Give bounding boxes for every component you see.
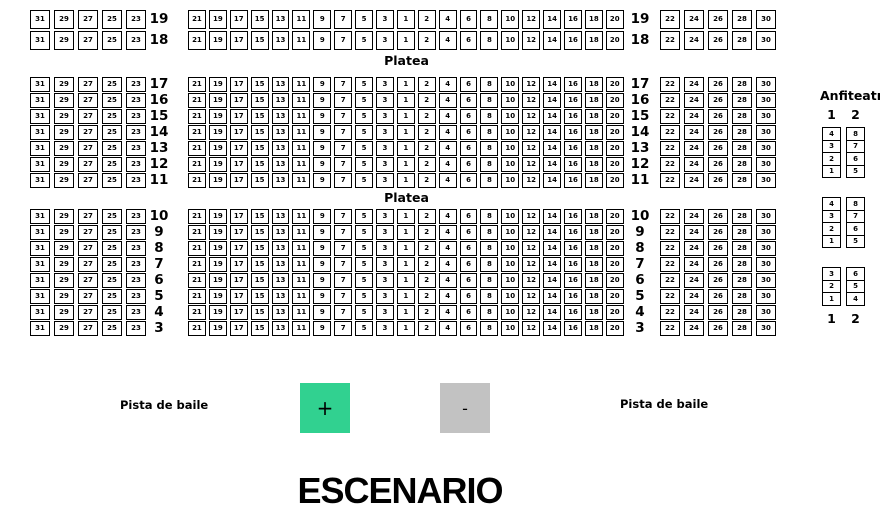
- anfiteatro-seat-g2-c2-8[interactable]: 8: [846, 197, 865, 211]
- seat-row4-num26[interactable]: 26: [708, 305, 728, 320]
- seat-row18-num27[interactable]: 27: [78, 31, 98, 50]
- seat-row9-num13[interactable]: 13: [272, 225, 290, 240]
- seat-row4-num3[interactable]: 3: [376, 305, 394, 320]
- seat-row6-num24[interactable]: 24: [684, 273, 704, 288]
- seat-row8-num24[interactable]: 24: [684, 241, 704, 256]
- seat-row19-num31[interactable]: 31: [30, 10, 50, 29]
- seat-row10-num18[interactable]: 18: [585, 209, 603, 224]
- seat-row10-num21[interactable]: 21: [188, 209, 206, 224]
- seat-row14-num19[interactable]: 19: [209, 125, 227, 140]
- seat-row8-num4[interactable]: 4: [439, 241, 457, 256]
- seat-row8-num28[interactable]: 28: [732, 241, 752, 256]
- seat-row10-num16[interactable]: 16: [564, 209, 582, 224]
- seat-row15-num15[interactable]: 15: [251, 109, 269, 124]
- seat-row16-num12[interactable]: 12: [522, 93, 540, 108]
- seat-row6-num9[interactable]: 9: [313, 273, 331, 288]
- seat-row12-num15[interactable]: 15: [251, 157, 269, 172]
- anfiteatro-seat-g1-c2-5[interactable]: 5: [846, 165, 865, 179]
- seat-row10-num13[interactable]: 13: [272, 209, 290, 224]
- seat-row16-num24[interactable]: 24: [684, 93, 704, 108]
- seat-row14-num16[interactable]: 16: [564, 125, 582, 140]
- seat-row7-num3[interactable]: 3: [376, 257, 394, 272]
- seat-row4-num24[interactable]: 24: [684, 305, 704, 320]
- seat-row17-num20[interactable]: 20: [606, 77, 624, 92]
- seat-row16-num11[interactable]: 11: [292, 93, 310, 108]
- seat-row9-num2[interactable]: 2: [418, 225, 436, 240]
- seat-row11-num28[interactable]: 28: [732, 173, 752, 188]
- seat-row13-num20[interactable]: 20: [606, 141, 624, 156]
- seat-row11-num4[interactable]: 4: [439, 173, 457, 188]
- seat-row15-num18[interactable]: 18: [585, 109, 603, 124]
- seat-row15-num20[interactable]: 20: [606, 109, 624, 124]
- seat-row19-num2[interactable]: 2: [418, 10, 436, 29]
- seat-row8-num11[interactable]: 11: [292, 241, 310, 256]
- seat-row15-num23[interactable]: 23: [126, 109, 146, 124]
- seat-row15-num26[interactable]: 26: [708, 109, 728, 124]
- seat-row14-num28[interactable]: 28: [732, 125, 752, 140]
- seat-row15-num5[interactable]: 5: [355, 109, 373, 124]
- seat-row18-num6[interactable]: 6: [460, 31, 478, 50]
- seat-row14-num3[interactable]: 3: [376, 125, 394, 140]
- seat-row13-num4[interactable]: 4: [439, 141, 457, 156]
- anfiteatro-seat-g1-c1-4[interactable]: 4: [822, 127, 841, 141]
- seat-row18-num28[interactable]: 28: [732, 31, 752, 50]
- seat-row11-num1[interactable]: 1: [397, 173, 415, 188]
- seat-row9-num20[interactable]: 20: [606, 225, 624, 240]
- seat-row16-num1[interactable]: 1: [397, 93, 415, 108]
- seat-row16-num26[interactable]: 26: [708, 93, 728, 108]
- seat-row14-num25[interactable]: 25: [102, 125, 122, 140]
- seat-row16-num17[interactable]: 17: [230, 93, 248, 108]
- seat-row19-num30[interactable]: 30: [756, 10, 776, 29]
- seat-row6-num22[interactable]: 22: [660, 273, 680, 288]
- seat-row14-num10[interactable]: 10: [501, 125, 519, 140]
- seat-row19-num27[interactable]: 27: [78, 10, 98, 29]
- seat-row14-num7[interactable]: 7: [334, 125, 352, 140]
- seat-row18-num7[interactable]: 7: [334, 31, 352, 50]
- seat-row10-num11[interactable]: 11: [292, 209, 310, 224]
- seat-row3-num24[interactable]: 24: [684, 321, 704, 336]
- seat-row5-num26[interactable]: 26: [708, 289, 728, 304]
- seat-row4-num22[interactable]: 22: [660, 305, 680, 320]
- seat-row12-num26[interactable]: 26: [708, 157, 728, 172]
- seat-row6-num26[interactable]: 26: [708, 273, 728, 288]
- anfiteatro-seat-g3-c1-1[interactable]: 1: [822, 292, 841, 306]
- seat-row7-num2[interactable]: 2: [418, 257, 436, 272]
- seat-row7-num4[interactable]: 4: [439, 257, 457, 272]
- seat-row4-num7[interactable]: 7: [334, 305, 352, 320]
- seat-row9-num24[interactable]: 24: [684, 225, 704, 240]
- seat-row7-num6[interactable]: 6: [460, 257, 478, 272]
- anfiteatro-seat-g2-c2-6[interactable]: 6: [846, 222, 865, 236]
- seat-row18-num22[interactable]: 22: [660, 31, 680, 50]
- seat-row16-num30[interactable]: 30: [756, 93, 776, 108]
- seat-row8-num1[interactable]: 1: [397, 241, 415, 256]
- seat-row15-num29[interactable]: 29: [54, 109, 74, 124]
- seat-row7-num18[interactable]: 18: [585, 257, 603, 272]
- seat-row6-num21[interactable]: 21: [188, 273, 206, 288]
- seat-row14-num26[interactable]: 26: [708, 125, 728, 140]
- seat-row15-num12[interactable]: 12: [522, 109, 540, 124]
- seat-row7-num16[interactable]: 16: [564, 257, 582, 272]
- seat-row19-num9[interactable]: 9: [313, 10, 331, 29]
- seat-row12-num12[interactable]: 12: [522, 157, 540, 172]
- seat-row15-num6[interactable]: 6: [460, 109, 478, 124]
- seat-row17-num6[interactable]: 6: [460, 77, 478, 92]
- seat-row16-num22[interactable]: 22: [660, 93, 680, 108]
- seat-row3-num17[interactable]: 17: [230, 321, 248, 336]
- seat-row7-num20[interactable]: 20: [606, 257, 624, 272]
- seat-row8-num25[interactable]: 25: [102, 241, 122, 256]
- seat-row8-num18[interactable]: 18: [585, 241, 603, 256]
- seat-row8-num19[interactable]: 19: [209, 241, 227, 256]
- seat-row13-num15[interactable]: 15: [251, 141, 269, 156]
- seat-row10-num8[interactable]: 8: [480, 209, 498, 224]
- seat-row4-num21[interactable]: 21: [188, 305, 206, 320]
- seat-row11-num20[interactable]: 20: [606, 173, 624, 188]
- seat-row13-num12[interactable]: 12: [522, 141, 540, 156]
- seat-row18-num2[interactable]: 2: [418, 31, 436, 50]
- seat-row19-num7[interactable]: 7: [334, 10, 352, 29]
- seat-row3-num9[interactable]: 9: [313, 321, 331, 336]
- seat-row7-num12[interactable]: 12: [522, 257, 540, 272]
- seat-row9-num18[interactable]: 18: [585, 225, 603, 240]
- seat-row10-num6[interactable]: 6: [460, 209, 478, 224]
- seat-row9-num14[interactable]: 14: [543, 225, 561, 240]
- seat-row13-num28[interactable]: 28: [732, 141, 752, 156]
- seat-row6-num28[interactable]: 28: [732, 273, 752, 288]
- seat-row12-num27[interactable]: 27: [78, 157, 98, 172]
- seat-row12-num18[interactable]: 18: [585, 157, 603, 172]
- seat-row3-num2[interactable]: 2: [418, 321, 436, 336]
- seat-row14-num30[interactable]: 30: [756, 125, 776, 140]
- seat-row6-num12[interactable]: 12: [522, 273, 540, 288]
- seat-row13-num10[interactable]: 10: [501, 141, 519, 156]
- seat-row6-num20[interactable]: 20: [606, 273, 624, 288]
- seat-row7-num21[interactable]: 21: [188, 257, 206, 272]
- seat-row9-num23[interactable]: 23: [126, 225, 146, 240]
- seat-row6-num15[interactable]: 15: [251, 273, 269, 288]
- seat-row9-num16[interactable]: 16: [564, 225, 582, 240]
- seat-row3-num6[interactable]: 6: [460, 321, 478, 336]
- seat-row3-num29[interactable]: 29: [54, 321, 74, 336]
- seat-row18-num24[interactable]: 24: [684, 31, 704, 50]
- seat-row8-num5[interactable]: 5: [355, 241, 373, 256]
- seat-row6-num6[interactable]: 6: [460, 273, 478, 288]
- seat-row6-num13[interactable]: 13: [272, 273, 290, 288]
- seat-row11-num6[interactable]: 6: [460, 173, 478, 188]
- seat-row19-num12[interactable]: 12: [522, 10, 540, 29]
- seat-row13-num2[interactable]: 2: [418, 141, 436, 156]
- anfiteatro-seat-g2-c1-4[interactable]: 4: [822, 197, 841, 211]
- seat-row18-num19[interactable]: 19: [209, 31, 227, 50]
- seat-row12-num3[interactable]: 3: [376, 157, 394, 172]
- seat-row17-num3[interactable]: 3: [376, 77, 394, 92]
- seat-row3-num28[interactable]: 28: [732, 321, 752, 336]
- anfiteatro-seat-g1-c2-8[interactable]: 8: [846, 127, 865, 141]
- seat-row4-num10[interactable]: 10: [501, 305, 519, 320]
- seat-row11-num17[interactable]: 17: [230, 173, 248, 188]
- seat-row18-num21[interactable]: 21: [188, 31, 206, 50]
- seat-row3-num26[interactable]: 26: [708, 321, 728, 336]
- seat-row18-num18[interactable]: 18: [585, 31, 603, 50]
- seat-row7-num31[interactable]: 31: [30, 257, 50, 272]
- seat-row13-num7[interactable]: 7: [334, 141, 352, 156]
- anfiteatro-seat-g3-c2-6[interactable]: 6: [846, 267, 865, 281]
- seat-row9-num4[interactable]: 4: [439, 225, 457, 240]
- seat-row8-num2[interactable]: 2: [418, 241, 436, 256]
- seat-row17-num14[interactable]: 14: [543, 77, 561, 92]
- seat-row10-num26[interactable]: 26: [708, 209, 728, 224]
- seat-row9-num5[interactable]: 5: [355, 225, 373, 240]
- seat-row8-num14[interactable]: 14: [543, 241, 561, 256]
- seat-row14-num5[interactable]: 5: [355, 125, 373, 140]
- seat-row5-num20[interactable]: 20: [606, 289, 624, 304]
- seat-row14-num18[interactable]: 18: [585, 125, 603, 140]
- anfiteatro-seat-g2-c1-3[interactable]: 3: [822, 210, 841, 224]
- seat-row15-num27[interactable]: 27: [78, 109, 98, 124]
- seat-row5-num28[interactable]: 28: [732, 289, 752, 304]
- seat-row10-num29[interactable]: 29: [54, 209, 74, 224]
- seat-row13-num17[interactable]: 17: [230, 141, 248, 156]
- seat-row9-num10[interactable]: 10: [501, 225, 519, 240]
- seat-row19-num3[interactable]: 3: [376, 10, 394, 29]
- seat-row3-num22[interactable]: 22: [660, 321, 680, 336]
- seat-row5-num17[interactable]: 17: [230, 289, 248, 304]
- seat-row6-num14[interactable]: 14: [543, 273, 561, 288]
- seat-row19-num26[interactable]: 26: [708, 10, 728, 29]
- seat-row16-num10[interactable]: 10: [501, 93, 519, 108]
- seat-row17-num27[interactable]: 27: [78, 77, 98, 92]
- seat-row15-num4[interactable]: 4: [439, 109, 457, 124]
- seat-row11-num8[interactable]: 8: [480, 173, 498, 188]
- seat-row18-num10[interactable]: 10: [501, 31, 519, 50]
- seat-row17-num7[interactable]: 7: [334, 77, 352, 92]
- seat-row8-num31[interactable]: 31: [30, 241, 50, 256]
- seat-row16-num5[interactable]: 5: [355, 93, 373, 108]
- seat-row4-num31[interactable]: 31: [30, 305, 50, 320]
- seat-row17-num24[interactable]: 24: [684, 77, 704, 92]
- seat-row4-num20[interactable]: 20: [606, 305, 624, 320]
- seat-row13-num11[interactable]: 11: [292, 141, 310, 156]
- seat-row17-num10[interactable]: 10: [501, 77, 519, 92]
- seat-row9-num3[interactable]: 3: [376, 225, 394, 240]
- seat-row14-num11[interactable]: 11: [292, 125, 310, 140]
- seat-row12-num5[interactable]: 5: [355, 157, 373, 172]
- seat-row10-num19[interactable]: 19: [209, 209, 227, 224]
- seat-row15-num19[interactable]: 19: [209, 109, 227, 124]
- seat-row14-num12[interactable]: 12: [522, 125, 540, 140]
- seat-row17-num29[interactable]: 29: [54, 77, 74, 92]
- seat-row8-num3[interactable]: 3: [376, 241, 394, 256]
- seat-row3-num5[interactable]: 5: [355, 321, 373, 336]
- seat-row8-num21[interactable]: 21: [188, 241, 206, 256]
- seat-row16-num29[interactable]: 29: [54, 93, 74, 108]
- seat-row18-num26[interactable]: 26: [708, 31, 728, 50]
- seat-row6-num3[interactable]: 3: [376, 273, 394, 288]
- anfiteatro-seat-g1-c1-1[interactable]: 1: [822, 165, 841, 179]
- seat-row7-num23[interactable]: 23: [126, 257, 146, 272]
- seat-row12-num13[interactable]: 13: [272, 157, 290, 172]
- seat-row8-num17[interactable]: 17: [230, 241, 248, 256]
- seat-row12-num31[interactable]: 31: [30, 157, 50, 172]
- seat-row10-num4[interactable]: 4: [439, 209, 457, 224]
- seat-row15-num30[interactable]: 30: [756, 109, 776, 124]
- seat-row16-num16[interactable]: 16: [564, 93, 582, 108]
- seat-row6-num10[interactable]: 10: [501, 273, 519, 288]
- seat-row18-num20[interactable]: 20: [606, 31, 624, 50]
- seat-row16-num14[interactable]: 14: [543, 93, 561, 108]
- seat-row17-num19[interactable]: 19: [209, 77, 227, 92]
- seat-row19-num18[interactable]: 18: [585, 10, 603, 29]
- seat-row4-num28[interactable]: 28: [732, 305, 752, 320]
- seat-row12-num21[interactable]: 21: [188, 157, 206, 172]
- seat-row9-num29[interactable]: 29: [54, 225, 74, 240]
- seat-row17-num28[interactable]: 28: [732, 77, 752, 92]
- seat-row3-num8[interactable]: 8: [480, 321, 498, 336]
- seat-row13-num14[interactable]: 14: [543, 141, 561, 156]
- seat-row5-num21[interactable]: 21: [188, 289, 206, 304]
- seat-row18-num30[interactable]: 30: [756, 31, 776, 50]
- seat-row10-num7[interactable]: 7: [334, 209, 352, 224]
- seat-row8-num27[interactable]: 27: [78, 241, 98, 256]
- seat-row17-num4[interactable]: 4: [439, 77, 457, 92]
- seat-row12-num23[interactable]: 23: [126, 157, 146, 172]
- seat-row7-num17[interactable]: 17: [230, 257, 248, 272]
- seat-row3-num19[interactable]: 19: [209, 321, 227, 336]
- seat-row4-num4[interactable]: 4: [439, 305, 457, 320]
- seat-row17-num16[interactable]: 16: [564, 77, 582, 92]
- seat-row4-num8[interactable]: 8: [480, 305, 498, 320]
- seat-row19-num20[interactable]: 20: [606, 10, 624, 29]
- seat-row7-num27[interactable]: 27: [78, 257, 98, 272]
- seat-row7-num25[interactable]: 25: [102, 257, 122, 272]
- seat-row8-num16[interactable]: 16: [564, 241, 582, 256]
- seat-row18-num11[interactable]: 11: [292, 31, 310, 50]
- seat-row14-num23[interactable]: 23: [126, 125, 146, 140]
- seat-row15-num3[interactable]: 3: [376, 109, 394, 124]
- seat-row4-num6[interactable]: 6: [460, 305, 478, 320]
- seat-row18-num31[interactable]: 31: [30, 31, 50, 50]
- seat-row5-num6[interactable]: 6: [460, 289, 478, 304]
- seat-row5-num12[interactable]: 12: [522, 289, 540, 304]
- seat-row5-num8[interactable]: 8: [480, 289, 498, 304]
- seat-row3-num3[interactable]: 3: [376, 321, 394, 336]
- seat-row17-num2[interactable]: 2: [418, 77, 436, 92]
- seat-row8-num30[interactable]: 30: [756, 241, 776, 256]
- seat-row4-num12[interactable]: 12: [522, 305, 540, 320]
- seat-row8-num13[interactable]: 13: [272, 241, 290, 256]
- seat-row7-num1[interactable]: 1: [397, 257, 415, 272]
- seat-row7-num24[interactable]: 24: [684, 257, 704, 272]
- seat-row11-num25[interactable]: 25: [102, 173, 122, 188]
- seat-row14-num8[interactable]: 8: [480, 125, 498, 140]
- seat-row4-num19[interactable]: 19: [209, 305, 227, 320]
- seat-row9-num25[interactable]: 25: [102, 225, 122, 240]
- seat-row11-num10[interactable]: 10: [501, 173, 519, 188]
- seat-row18-num23[interactable]: 23: [126, 31, 146, 50]
- seat-row18-num16[interactable]: 16: [564, 31, 582, 50]
- seat-row15-num1[interactable]: 1: [397, 109, 415, 124]
- seat-row9-num12[interactable]: 12: [522, 225, 540, 240]
- seat-row17-num25[interactable]: 25: [102, 77, 122, 92]
- seat-row12-num2[interactable]: 2: [418, 157, 436, 172]
- seat-row10-num20[interactable]: 20: [606, 209, 624, 224]
- seat-row9-num7[interactable]: 7: [334, 225, 352, 240]
- seat-row11-num5[interactable]: 5: [355, 173, 373, 188]
- seat-row18-num5[interactable]: 5: [355, 31, 373, 50]
- seat-row12-num8[interactable]: 8: [480, 157, 498, 172]
- seat-row9-num15[interactable]: 15: [251, 225, 269, 240]
- seat-row8-num26[interactable]: 26: [708, 241, 728, 256]
- seat-row11-num22[interactable]: 22: [660, 173, 680, 188]
- seat-row12-num17[interactable]: 17: [230, 157, 248, 172]
- seat-row15-num13[interactable]: 13: [272, 109, 290, 124]
- seat-row10-num31[interactable]: 31: [30, 209, 50, 224]
- seat-row10-num9[interactable]: 9: [313, 209, 331, 224]
- seat-row11-num15[interactable]: 15: [251, 173, 269, 188]
- seat-row16-num21[interactable]: 21: [188, 93, 206, 108]
- seat-row9-num22[interactable]: 22: [660, 225, 680, 240]
- seat-row11-num27[interactable]: 27: [78, 173, 98, 188]
- seat-row14-num9[interactable]: 9: [313, 125, 331, 140]
- seat-row12-num7[interactable]: 7: [334, 157, 352, 172]
- seat-row19-num25[interactable]: 25: [102, 10, 122, 29]
- seat-row3-num1[interactable]: 1: [397, 321, 415, 336]
- anfiteatro-seat-g2-c2-7[interactable]: 7: [846, 210, 865, 224]
- seat-row5-num14[interactable]: 14: [543, 289, 561, 304]
- seat-row3-num23[interactable]: 23: [126, 321, 146, 336]
- seat-row15-num14[interactable]: 14: [543, 109, 561, 124]
- seat-row19-num21[interactable]: 21: [188, 10, 206, 29]
- seat-row6-num25[interactable]: 25: [102, 273, 122, 288]
- seat-row18-num25[interactable]: 25: [102, 31, 122, 50]
- seat-row12-num29[interactable]: 29: [54, 157, 74, 172]
- seat-row13-num19[interactable]: 19: [209, 141, 227, 156]
- seat-row5-num29[interactable]: 29: [54, 289, 74, 304]
- seat-row19-num23[interactable]: 23: [126, 10, 146, 29]
- seat-row8-num9[interactable]: 9: [313, 241, 331, 256]
- seat-row10-num5[interactable]: 5: [355, 209, 373, 224]
- seat-row7-num22[interactable]: 22: [660, 257, 680, 272]
- seat-row14-num1[interactable]: 1: [397, 125, 415, 140]
- seat-row8-num8[interactable]: 8: [480, 241, 498, 256]
- seat-row14-num21[interactable]: 21: [188, 125, 206, 140]
- seat-row3-num4[interactable]: 4: [439, 321, 457, 336]
- seat-row5-num16[interactable]: 16: [564, 289, 582, 304]
- seat-row14-num20[interactable]: 20: [606, 125, 624, 140]
- seat-row13-num27[interactable]: 27: [78, 141, 98, 156]
- anfiteatro-seat-g3-c1-3[interactable]: 3: [822, 267, 841, 281]
- seat-row3-num12[interactable]: 12: [522, 321, 540, 336]
- seat-row17-num31[interactable]: 31: [30, 77, 50, 92]
- seat-row11-num23[interactable]: 23: [126, 173, 146, 188]
- seat-row5-num13[interactable]: 13: [272, 289, 290, 304]
- seat-row4-num18[interactable]: 18: [585, 305, 603, 320]
- anfiteatro-seat-g3-c2-5[interactable]: 5: [846, 280, 865, 294]
- seat-row13-num9[interactable]: 9: [313, 141, 331, 156]
- seat-row11-num29[interactable]: 29: [54, 173, 74, 188]
- seat-row14-num2[interactable]: 2: [418, 125, 436, 140]
- seat-row9-num26[interactable]: 26: [708, 225, 728, 240]
- seat-row3-num11[interactable]: 11: [292, 321, 310, 336]
- seat-row12-num4[interactable]: 4: [439, 157, 457, 172]
- seat-row13-num26[interactable]: 26: [708, 141, 728, 156]
- seat-row9-num8[interactable]: 8: [480, 225, 498, 240]
- seat-row11-num24[interactable]: 24: [684, 173, 704, 188]
- seat-row15-num17[interactable]: 17: [230, 109, 248, 124]
- seat-row8-num20[interactable]: 20: [606, 241, 624, 256]
